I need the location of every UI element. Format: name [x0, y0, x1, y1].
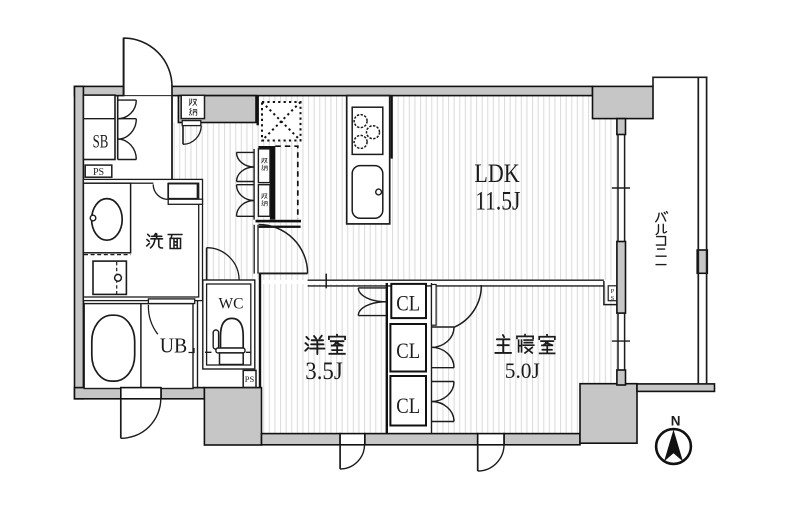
svg-text:CL: CL — [396, 291, 420, 316]
svg-text:UB: UB — [160, 333, 188, 357]
svg-text:3.5J: 3.5J — [305, 358, 343, 385]
svg-text:5.0J: 5.0J — [505, 358, 540, 383]
svg-text:SB: SB — [93, 133, 109, 153]
svg-text:11.5J: 11.5J — [475, 187, 520, 216]
svg-text:CL: CL — [396, 393, 420, 418]
svg-text:PS: PS — [245, 374, 255, 384]
svg-text:PS: PS — [93, 167, 104, 178]
svg-text:LDK: LDK — [474, 159, 519, 188]
svg-text:WC: WC — [219, 296, 244, 313]
svg-text:N: N — [671, 413, 681, 428]
svg-text:S: S — [611, 295, 615, 302]
svg-text:CL: CL — [396, 338, 420, 363]
